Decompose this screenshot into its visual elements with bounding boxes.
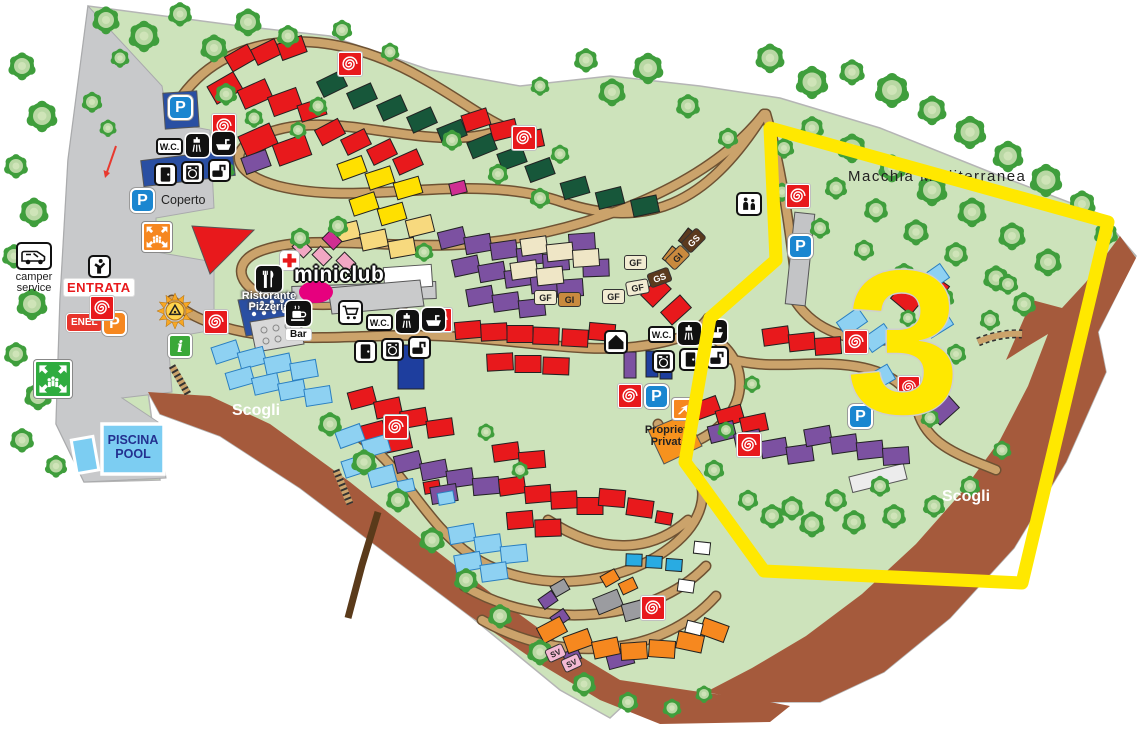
piscina-line1: PISCINA bbox=[100, 433, 166, 447]
sun-animation-icon bbox=[156, 292, 194, 330]
piscina-pool-label: PISCINA POOL bbox=[100, 433, 166, 461]
restaurant-icon bbox=[256, 266, 282, 292]
pitch-type-gf-chip: GF bbox=[534, 290, 557, 305]
dishwashing-icon bbox=[208, 159, 231, 182]
playground-people-icon bbox=[736, 192, 762, 216]
washing-machine-icon bbox=[381, 338, 404, 361]
miniclub-label: miniclub bbox=[294, 263, 384, 287]
guard-icon bbox=[88, 255, 111, 278]
parking-icon-top: P bbox=[168, 95, 193, 120]
camper-line2: service bbox=[2, 283, 66, 294]
reception-house-icon bbox=[604, 330, 628, 354]
info-icon: i bbox=[168, 334, 192, 358]
camper-service-icon bbox=[16, 242, 52, 270]
proprieta-privata-label: Proprietà Privata bbox=[640, 424, 698, 448]
proprieta-line1: Proprietà bbox=[640, 424, 698, 436]
pitch-type-gf-chip: GF bbox=[602, 289, 625, 304]
private-property-arrow-icon bbox=[672, 398, 694, 420]
market-cart-icon bbox=[338, 300, 363, 325]
sink-icon bbox=[212, 132, 235, 155]
fire-hose-icon bbox=[384, 415, 408, 439]
camper-service-label: camper service bbox=[2, 272, 66, 294]
shower-icon bbox=[678, 322, 701, 345]
campground-map: Macchia Mediterranea Scogli Scogli PISCI… bbox=[0, 0, 1141, 731]
entrata-label: ENTRATA bbox=[64, 279, 134, 296]
fire-hose-icon bbox=[786, 184, 810, 208]
door-icon bbox=[354, 340, 377, 363]
dishwashing-icon bbox=[706, 346, 729, 369]
fire-hose-icon bbox=[737, 433, 761, 457]
parking-icon-center: P bbox=[644, 384, 669, 409]
wc-badge: W.C. bbox=[156, 138, 183, 155]
bar-label: Bar bbox=[286, 329, 311, 340]
shower-icon bbox=[396, 310, 419, 333]
fire-hose-icon bbox=[90, 296, 114, 320]
macchia-mediterranea-label: Macchia Mediterranea bbox=[848, 168, 1026, 185]
piscina-line2: POOL bbox=[100, 447, 166, 461]
sink-icon bbox=[704, 320, 727, 343]
dishwashing-icon bbox=[408, 336, 431, 359]
assembly-point-green-icon bbox=[34, 360, 72, 398]
assembly-point-orange-icon bbox=[142, 222, 172, 252]
scogli-left-label: Scogli bbox=[232, 402, 280, 420]
parking-covered-icon: P bbox=[130, 188, 155, 213]
door-icon bbox=[154, 163, 177, 186]
fire-hose-icon bbox=[204, 310, 228, 334]
wc-badge: W.C. bbox=[648, 326, 675, 343]
fire-hose-icon bbox=[618, 384, 642, 408]
washing-machine-icon bbox=[652, 350, 675, 373]
zone-3-label: 3 bbox=[828, 243, 978, 443]
fire-hose-icon bbox=[641, 596, 665, 620]
sink-icon bbox=[422, 308, 445, 331]
pitch-type-gf-chip: GF bbox=[624, 255, 647, 270]
shower-icon bbox=[186, 134, 209, 157]
parking-icon-zone3: P bbox=[788, 234, 813, 259]
coperto-label: Coperto bbox=[161, 193, 205, 207]
fire-hose-icon bbox=[512, 126, 536, 150]
bar-cup-icon bbox=[286, 301, 311, 326]
door-icon bbox=[679, 348, 702, 371]
wc-badge: W.C. bbox=[366, 314, 393, 331]
pitch-type-gi-chip: GI bbox=[558, 292, 581, 307]
washing-machine-icon bbox=[181, 161, 204, 184]
proprieta-line2: Privata bbox=[640, 436, 698, 448]
scogli-right-label: Scogli bbox=[942, 488, 990, 506]
fire-hose-icon bbox=[338, 52, 362, 76]
